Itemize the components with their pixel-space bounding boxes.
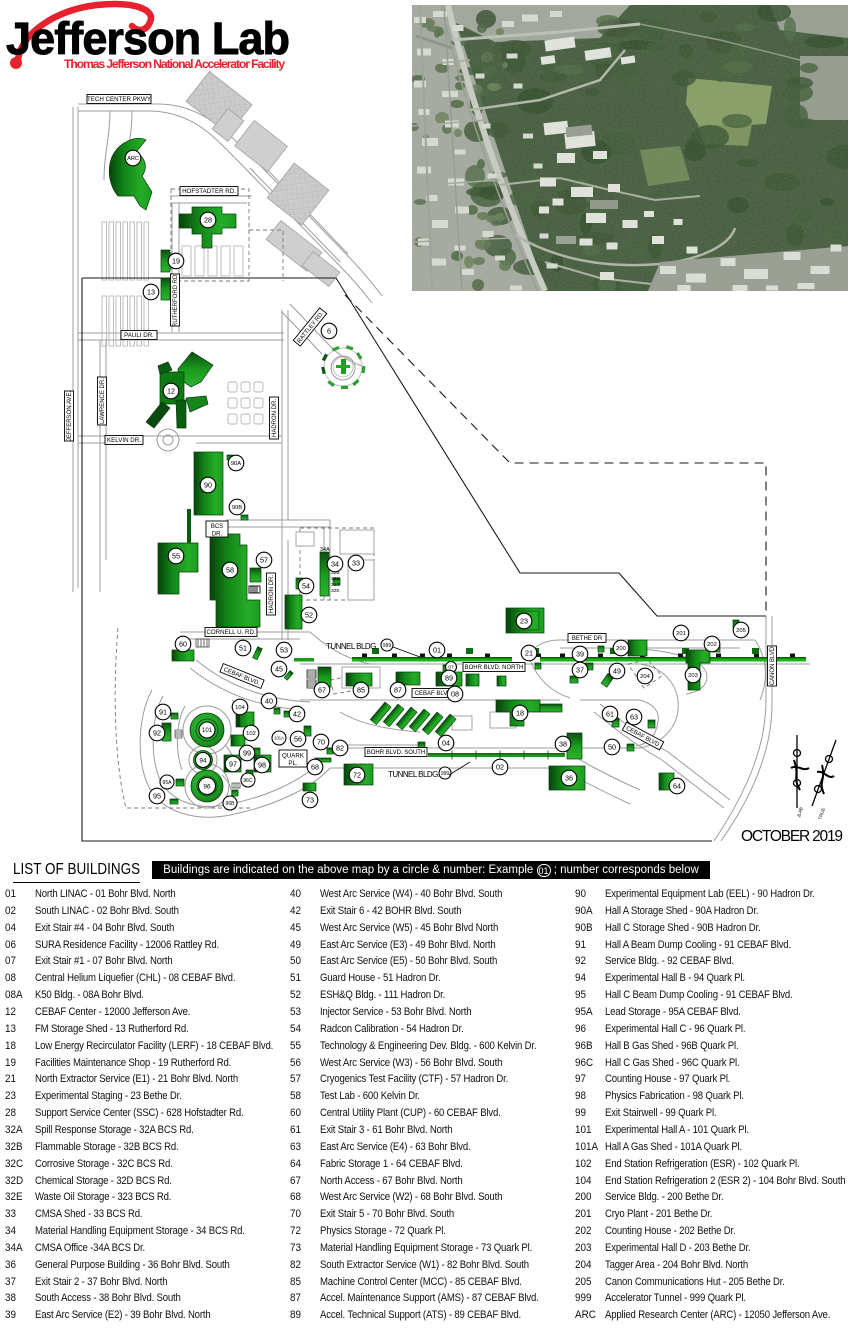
svg-text:94: 94 [199,757,207,764]
svg-text:56: 56 [294,735,302,744]
svg-text:96C: 96C [243,778,253,784]
svg-text:TRUE: TRUE [817,807,826,820]
svg-text:70: 70 [317,738,325,747]
svg-text:36: 36 [565,774,573,783]
svg-text:32C: 32C [331,576,340,582]
svg-text:18: 18 [516,709,524,718]
svg-text:RUTHERFORD RD.: RUTHERFORD RD. [173,273,179,327]
svg-text:45: 45 [275,665,283,674]
svg-text:87: 87 [394,686,402,695]
svg-text:72: 72 [353,771,361,780]
svg-text:102: 102 [246,731,256,737]
svg-text:89: 89 [445,674,453,683]
svg-text:200: 200 [616,646,626,652]
svg-text:HADRON DR.: HADRON DR. [269,575,275,613]
svg-text:90: 90 [204,481,212,490]
svg-text:37: 37 [576,666,584,675]
svg-text:204: 204 [640,674,650,680]
svg-text:61: 61 [606,710,614,719]
svg-text:82: 82 [336,744,344,753]
svg-text:Thomas Jefferson National Acce: Thomas Jefferson National Accelerator Fa… [64,57,285,71]
svg-text:68: 68 [311,763,319,772]
svg-text:TECH CENTER PKWY: TECH CENTER PKWY [87,96,151,103]
svg-text:95A: 95A [163,780,173,786]
svg-text:64: 64 [673,782,681,791]
svg-text:39: 39 [576,650,584,659]
svg-text:21: 21 [525,649,533,658]
svg-text:6: 6 [327,327,331,336]
svg-text:53: 53 [280,646,288,655]
svg-text:57: 57 [260,556,268,565]
svg-text:42: 42 [293,710,301,719]
svg-text:101: 101 [202,728,213,734]
svg-text:33: 33 [352,559,360,568]
svg-text:101A: 101A [274,736,284,741]
svg-text:BETHE DR: BETHE DR [572,636,603,642]
svg-text:55: 55 [172,552,180,561]
svg-text:96: 96 [203,783,211,790]
svg-text:205: 205 [736,628,746,634]
svg-text:90B: 90B [232,505,242,511]
svg-text:91: 91 [159,708,167,717]
svg-text:BCS: BCS [211,524,223,530]
svg-text:202: 202 [707,642,717,648]
svg-text:999: 999 [383,643,392,649]
svg-text:67: 67 [318,686,326,695]
svg-text:73: 73 [306,796,314,805]
svg-text:201: 201 [676,631,686,637]
svg-text:52: 52 [305,611,313,620]
svg-text:32D: 32D [331,582,340,588]
svg-text:19: 19 [172,257,180,266]
svg-text:60: 60 [179,640,187,649]
svg-text:LAWRENCE DR.: LAWRENCE DR. [100,378,106,424]
svg-text:49: 49 [613,667,621,676]
svg-text:34: 34 [331,560,339,569]
svg-text:02: 02 [496,763,504,772]
svg-text:97: 97 [229,760,237,769]
svg-text:95: 95 [153,792,161,801]
svg-text:40: 40 [265,697,273,706]
svg-text:CORNELL U. RD.: CORNELL U. RD. [206,629,256,636]
svg-text:TUNNEL BLDG.: TUNNEL BLDG. [388,770,440,779]
svg-text:32E: 32E [331,588,340,594]
svg-text:999: 999 [441,771,450,777]
svg-text:DR.: DR. [212,532,223,538]
svg-text:JLAB: JLAB [796,807,804,819]
svg-text:CANON BLVD: CANON BLVD [770,646,776,685]
svg-text:04: 04 [442,739,450,748]
svg-text:203: 203 [688,673,698,679]
svg-text:23: 23 [520,617,528,626]
svg-text:01: 01 [433,646,441,655]
svg-text:38: 38 [559,740,567,749]
svg-text:85: 85 [357,686,365,695]
svg-text:13: 13 [147,288,155,297]
svg-text:92: 92 [153,729,161,738]
svg-text:QUARK: QUARK [282,753,305,760]
svg-text:28: 28 [204,216,212,225]
svg-text:OCTOBER 2019: OCTOBER 2019 [741,828,843,845]
svg-text:34A: 34A [320,547,330,553]
svg-text:12: 12 [167,387,175,396]
svg-text:JEFFERSON AVE.: JEFFERSON AVE. [67,391,73,442]
svg-text:TUNNEL BLDG.: TUNNEL BLDG. [326,642,378,651]
svg-text:PAULI DR.: PAULI DR. [124,332,154,339]
svg-text:50: 50 [608,743,616,752]
svg-text:96B: 96B [226,801,236,807]
svg-text:PL.: PL. [288,760,298,767]
svg-text:BOHR BLVD. NORTH: BOHR BLVD. NORTH [465,665,524,671]
svg-text:63: 63 [630,713,638,722]
svg-text:BOHR BLVD. SOUTH: BOHR BLVD. SOUTH [367,750,426,756]
svg-text:99: 99 [243,749,251,758]
svg-text:58: 58 [226,566,234,575]
svg-text:90A: 90A [231,461,241,467]
svg-text:HOFSTADTER RD.: HOFSTADTER RD. [182,188,236,195]
svg-text:KELVIN DR.: KELVIN DR. [107,437,141,444]
svg-text:HADRON DR.: HADRON DR. [272,399,278,437]
svg-text:98: 98 [258,761,266,770]
svg-text:54: 54 [302,582,310,591]
svg-text:ARC: ARC [127,156,139,162]
svg-text:104: 104 [235,705,245,711]
svg-text:08: 08 [451,690,459,699]
svg-text:51: 51 [239,644,247,653]
